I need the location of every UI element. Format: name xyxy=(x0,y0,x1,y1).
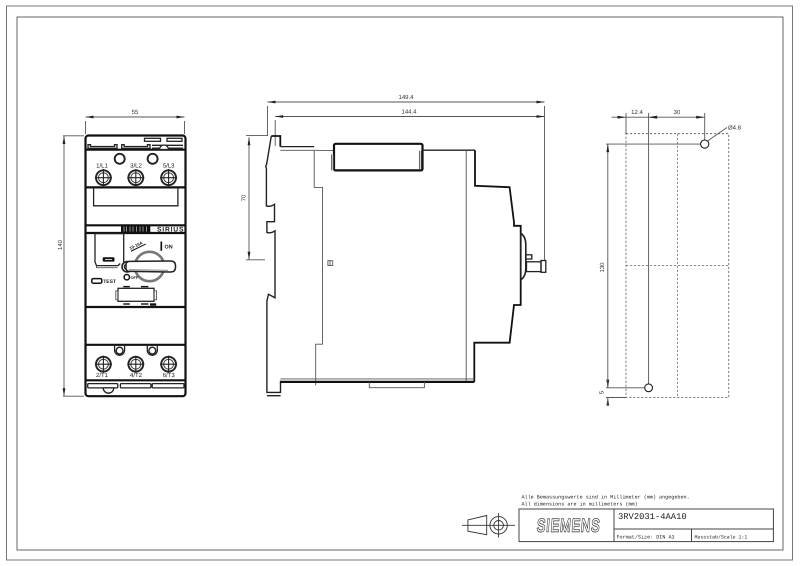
svg-text:55: 55 xyxy=(132,109,139,116)
svg-text:6/T3: 6/T3 xyxy=(163,372,176,379)
svg-text:130: 130 xyxy=(599,262,606,273)
svg-text:OFF: OFF xyxy=(131,276,139,280)
svg-text:TEST: TEST xyxy=(103,279,116,285)
svg-text:2/T1: 2/T1 xyxy=(96,372,109,379)
svg-text:SIRIUS: SIRIUS xyxy=(157,226,184,233)
svg-text:144.4: 144.4 xyxy=(401,109,417,116)
svg-text:Massstab/Scale 1:1: Massstab/Scale 1:1 xyxy=(695,535,748,541)
svg-text:Ø4.8: Ø4.8 xyxy=(728,125,742,132)
svg-text:12.4: 12.4 xyxy=(631,109,643,116)
svg-text:3RV2031-4AA10: 3RV2031-4AA10 xyxy=(618,512,687,522)
svg-text:149.4: 149.4 xyxy=(398,94,414,101)
svg-text:5/L3: 5/L3 xyxy=(163,162,175,169)
svg-text:4/T2: 4/T2 xyxy=(130,372,143,379)
svg-text:3/L2: 3/L2 xyxy=(130,162,142,169)
svg-text:Alle Bemassungswerte sind in M: Alle Bemassungswerte sind in Millimeter … xyxy=(522,495,690,501)
svg-text:Format/Size: DIN A3: Format/Size: DIN A3 xyxy=(617,535,675,541)
svg-text:All dimensions are in millimet: All dimensions are in millimeters (mm) xyxy=(522,502,638,508)
svg-text:140: 140 xyxy=(57,239,64,250)
svg-text:30: 30 xyxy=(674,109,681,116)
svg-text:1/L1: 1/L1 xyxy=(96,162,108,169)
svg-text:ON: ON xyxy=(165,244,173,250)
svg-text:SIEMENS: SIEMENS xyxy=(536,515,601,535)
svg-text:70: 70 xyxy=(241,194,248,201)
